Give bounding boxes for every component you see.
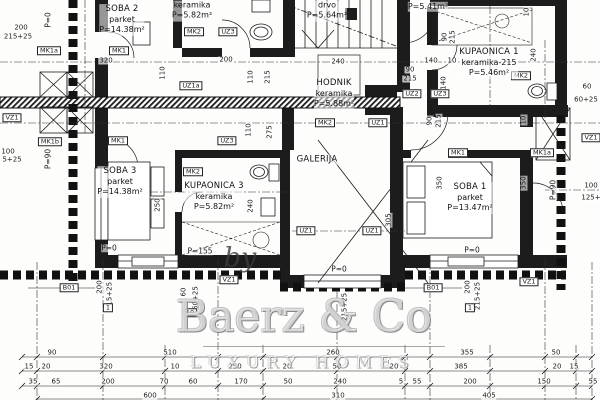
dimension-label: 10 bbox=[521, 115, 528, 126]
dimension-label: 200 bbox=[218, 57, 233, 64]
floor-plan-page: 3201102001102159021514010140902151024024… bbox=[0, 0, 600, 400]
room-label: HODNIKkeramikaP=5.88m² bbox=[314, 78, 354, 110]
element-tag: 1 bbox=[103, 303, 113, 312]
dimension-label: 100 bbox=[0, 149, 15, 156]
dimension-label: 15 bbox=[24, 364, 35, 371]
dimension-label: 35 bbox=[28, 379, 39, 386]
room-name: SOBA 3 bbox=[97, 166, 142, 177]
level-label: P=90 bbox=[44, 149, 52, 169]
element-tag: 1 bbox=[465, 303, 475, 312]
room-area: P=5.46m² bbox=[459, 69, 518, 79]
dimension-label: 305 bbox=[386, 212, 393, 227]
dimension-label: 200 bbox=[462, 379, 477, 386]
element-tag: MK2 bbox=[315, 118, 335, 127]
room-name: KUPAONICA 1 bbox=[459, 47, 518, 58]
element-tag: MK2 bbox=[184, 27, 204, 36]
element-tag: UZ3 bbox=[217, 136, 236, 145]
dimension-label: 200 bbox=[465, 279, 472, 294]
room-floor: keramika-215 bbox=[459, 58, 518, 68]
dimension-label: 215 bbox=[436, 113, 443, 128]
dimension-label: 10 bbox=[447, 58, 458, 65]
room-area: P=14.38m² bbox=[99, 26, 144, 36]
dimension-label: 200 bbox=[97, 279, 104, 294]
room-area: P=5.88m² bbox=[314, 100, 354, 110]
dimension-label: 20 bbox=[41, 364, 52, 371]
room-label: SOBA 1parketP=13.47m² bbox=[447, 182, 492, 214]
room-floor: parket bbox=[97, 177, 142, 187]
room-name: HODNIK bbox=[314, 78, 354, 89]
dimension-label: 310 bbox=[330, 393, 345, 400]
room-name: SOBA 1 bbox=[447, 182, 492, 193]
dimension-label: 10 bbox=[524, 7, 531, 18]
room-floor: parket bbox=[447, 193, 492, 203]
dimension-label: 215 bbox=[402, 76, 417, 83]
room-label: KUPAONICA 1keramika-215P=5.46m² bbox=[459, 47, 518, 79]
element-tag: UZ1 bbox=[368, 118, 387, 127]
dimension-label: 5 bbox=[398, 379, 404, 386]
watermark-rule bbox=[203, 346, 445, 347]
element-tag: UZ1a bbox=[179, 81, 202, 90]
dimension-label: 50 bbox=[283, 379, 294, 386]
room-floor: drvo bbox=[307, 1, 347, 11]
dimension-label: 215+25 bbox=[3, 34, 33, 41]
dimension-label: 200 bbox=[100, 379, 115, 386]
dimension-label: 170 bbox=[233, 379, 248, 386]
element-tag: MK1b bbox=[38, 137, 62, 146]
element-tag: VZ1 bbox=[219, 275, 238, 284]
element-tag: UZ2 bbox=[402, 89, 421, 98]
room-label: keramikaP=5.82m² bbox=[172, 1, 212, 22]
room-floor: keramika bbox=[314, 89, 354, 99]
dimension-label: 240 bbox=[330, 59, 345, 66]
dimension-label: 600 bbox=[142, 393, 157, 400]
room-label: drvoP=5.64m² bbox=[307, 1, 347, 22]
room-name: KUPAONICA 3 bbox=[184, 181, 243, 192]
room-area: P=5.41m² bbox=[408, 2, 448, 12]
element-tag: UZ3 bbox=[218, 27, 237, 36]
room-label: P=5.41m² bbox=[408, 2, 448, 12]
room-area: P=5.64m² bbox=[307, 11, 347, 21]
dimension-label: 90 bbox=[442, 32, 449, 43]
element-tag: B01 bbox=[60, 283, 79, 292]
element-tag: UZ3 bbox=[430, 89, 449, 98]
dimension-label: 90 bbox=[47, 350, 58, 357]
element-tag: UZ1 bbox=[296, 226, 315, 235]
dimension-label: 50 bbox=[551, 350, 562, 357]
element-tag: MK1 bbox=[109, 46, 129, 55]
dimension-label: 125+ bbox=[580, 195, 600, 202]
dimension-label: 215 bbox=[450, 29, 457, 44]
dimension-label: 55 bbox=[412, 379, 423, 386]
dimension-label: 110 bbox=[248, 69, 255, 84]
dimension-label: 320 bbox=[98, 58, 113, 65]
dimension-label: 200 bbox=[13, 25, 28, 32]
dimension-label: 5+25 bbox=[1, 157, 22, 164]
element-tag: MK1a bbox=[37, 46, 61, 55]
dimension-label: 240 bbox=[248, 198, 255, 213]
dimension-label: 15 bbox=[569, 364, 580, 371]
element-tag: MK2 bbox=[183, 167, 203, 176]
element-tag: VZ1 bbox=[2, 113, 21, 122]
level-label: P=0 bbox=[331, 265, 347, 273]
dimension-label: 150 bbox=[536, 379, 551, 386]
room-label: SOBA 2parketP=14.38m² bbox=[99, 4, 144, 36]
dimension-label: 60+25 bbox=[573, 97, 599, 104]
dimension-label: 55 bbox=[588, 379, 599, 386]
dimension-label: 70 bbox=[159, 379, 170, 386]
dimension-label: 65 bbox=[51, 379, 62, 386]
room-floor: keramika bbox=[184, 192, 243, 202]
dimension-label: 275 bbox=[267, 124, 274, 139]
dimension-label: 90 bbox=[427, 116, 434, 127]
level-label: P=0 bbox=[44, 12, 52, 28]
room-area: P=13.47m² bbox=[447, 204, 492, 214]
dimension-label: 350 bbox=[521, 175, 528, 190]
watermark-tagline: LUXURY HOMES bbox=[190, 353, 415, 372]
room-area: P=14.38m² bbox=[97, 188, 142, 198]
dimension-label: 250 bbox=[155, 197, 162, 212]
room-label: KUPAONICA 3keramikaP=5.82m² bbox=[184, 181, 243, 213]
level-label: P=0 bbox=[101, 244, 117, 252]
dimension-label: 240 bbox=[332, 379, 347, 386]
room-label: SOBA 3parketP=14.38m² bbox=[97, 166, 142, 198]
dimension-label: 90 bbox=[405, 67, 416, 74]
dimension-label: 240 bbox=[531, 47, 538, 62]
dimension-label: 100 bbox=[583, 183, 598, 190]
dimension-label: 405 bbox=[481, 393, 496, 400]
room-area: P=5.82m² bbox=[184, 203, 243, 213]
element-tag: VZ1 bbox=[581, 133, 600, 142]
dimension-label: 60 bbox=[582, 84, 593, 91]
element-tag: VZ1 bbox=[519, 277, 538, 286]
dimension-label: 110 bbox=[160, 65, 167, 80]
dimension-label: 385 bbox=[453, 364, 468, 371]
dimension-label: 320 bbox=[98, 364, 113, 371]
room-floor: parket bbox=[99, 15, 144, 25]
dimension-label: 60 bbox=[188, 379, 199, 386]
level-label: P=90 bbox=[549, 180, 557, 200]
dimension-label: 110 bbox=[246, 122, 253, 137]
room-floor: keramika bbox=[172, 1, 212, 11]
element-tag: MK1 bbox=[448, 148, 468, 157]
watermark-by: by bbox=[224, 243, 257, 274]
level-label: P=155 bbox=[187, 247, 212, 255]
dimension-label: 10 bbox=[170, 364, 181, 371]
dimension-label: 510 bbox=[162, 350, 177, 357]
room-label: GALERIJA bbox=[297, 154, 338, 165]
watermark-brand: Baerz & Co bbox=[176, 292, 432, 343]
dimension-label: 215 bbox=[265, 69, 272, 84]
dimension-label: 215+25 bbox=[475, 281, 482, 311]
level-label: P=0 bbox=[464, 246, 480, 254]
element-tag: UZ1 bbox=[362, 226, 381, 235]
room-name: SOBA 2 bbox=[99, 4, 144, 15]
dimension-label: 355 bbox=[459, 350, 474, 357]
dimension-label: 20 bbox=[552, 364, 563, 371]
dimension-label: 140 bbox=[423, 58, 438, 65]
room-area: P=5.82m² bbox=[172, 11, 212, 21]
dimension-label: 350 bbox=[437, 175, 444, 190]
element-tag: MK1 bbox=[108, 136, 128, 145]
element-tag: MK1a bbox=[530, 148, 554, 157]
room-name: GALERIJA bbox=[297, 154, 338, 165]
